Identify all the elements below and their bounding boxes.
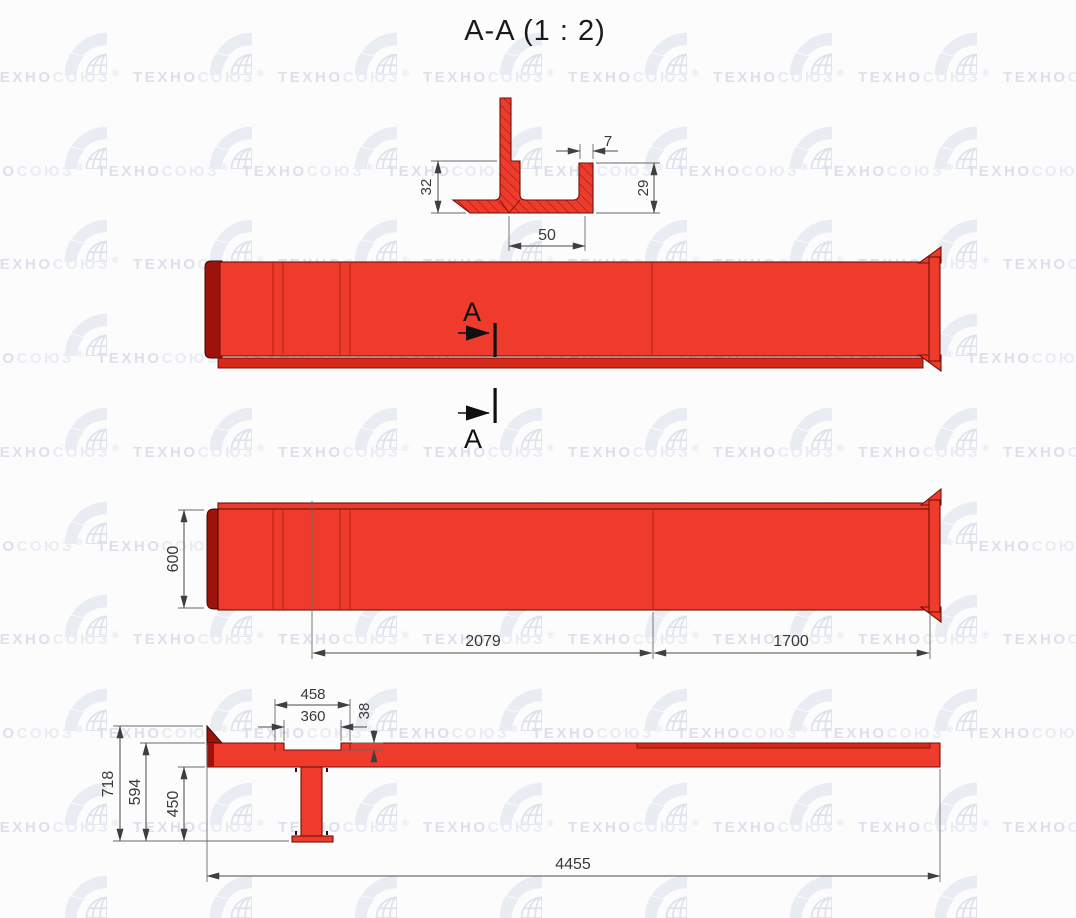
dim-50: 50: [509, 216, 585, 251]
dim-label-458: 458: [300, 686, 325, 703]
beam2-body: [218, 509, 930, 610]
dim-label-600: 600: [165, 546, 182, 573]
dim-600: 600: [165, 510, 204, 608]
dim-label-2079: 2079: [465, 633, 501, 650]
dim-label-360: 360: [300, 708, 325, 725]
dim-label-450: 450: [165, 791, 182, 818]
beam2-left-cap: [207, 509, 218, 609]
dim-label-29: 29: [635, 180, 652, 197]
dim-label-32: 32: [418, 179, 435, 196]
dim-label-1700: 1700: [773, 633, 809, 650]
cut-label-bottom: A: [464, 424, 482, 454]
dim-label-50: 50: [538, 227, 556, 244]
section-view: 32 7 29 50: [418, 98, 660, 251]
front-beam-view: A A: [205, 247, 941, 454]
technical-drawing: A-A (1 : 2) 32 7 29: [0, 0, 1076, 899]
section-title: A-A (1 : 2): [464, 15, 606, 47]
dim-7: 7: [556, 133, 618, 159]
side-left-gusset: [207, 726, 222, 743]
side-doubler-strip: [637, 743, 930, 748]
side-leg-foot: [292, 836, 333, 842]
section-cut-marker-bottom: A: [458, 388, 497, 454]
side-view: 458 360 38 718 594: [100, 686, 940, 882]
dim-label-38: 38: [356, 703, 373, 720]
beam1-bottom-strip: [218, 358, 923, 368]
side-left-cap-edge: [207, 743, 214, 767]
beam2-top-strip: [218, 503, 930, 509]
dim-450: 450: [165, 767, 205, 841]
dim-label-4455: 4455: [555, 856, 591, 873]
dim-1700: 1700: [654, 614, 930, 659]
dim-label-594: 594: [127, 779, 144, 806]
section-profile: [453, 98, 593, 213]
dim-label-718: 718: [100, 771, 117, 798]
cut-label-top: A: [463, 297, 481, 327]
plan-beam-view: 600 2079 1700: [165, 489, 941, 659]
dim-360: 360: [258, 708, 367, 741]
dim-label-7: 7: [604, 133, 612, 150]
dim-29: 29: [596, 163, 660, 213]
side-leg-post: [301, 767, 322, 836]
beam1-body: [220, 262, 930, 356]
